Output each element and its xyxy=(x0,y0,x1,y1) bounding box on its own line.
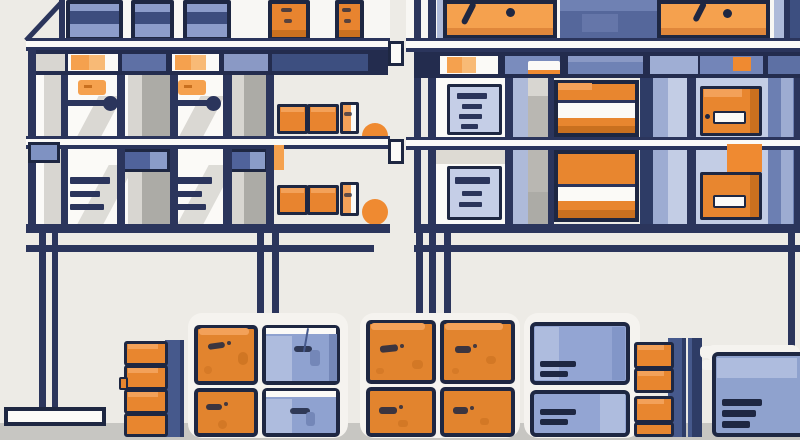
box-texture-spot xyxy=(218,420,227,429)
box-highlight xyxy=(558,83,592,90)
rack-cross-bar xyxy=(414,245,800,252)
light-column xyxy=(781,150,793,224)
band-slot-gray xyxy=(33,54,65,71)
band-orange-box-lt xyxy=(89,55,105,70)
band-orange-box-lt xyxy=(462,57,476,73)
box-smudge xyxy=(379,407,397,414)
label-dash xyxy=(184,85,192,88)
navy-sliver xyxy=(794,150,800,224)
bin-blob xyxy=(306,412,315,426)
ladder-strut-diagonal xyxy=(24,0,64,42)
list-line xyxy=(172,177,212,184)
crate-highlight xyxy=(128,392,158,397)
box-highlight xyxy=(445,323,503,330)
parcel-mark-dot xyxy=(506,8,515,17)
panel-gray-dark xyxy=(142,75,170,136)
list-line xyxy=(540,409,576,415)
bin-dark-right xyxy=(329,334,337,381)
orange-crate xyxy=(124,413,168,437)
pale-panel xyxy=(668,78,687,137)
list-line xyxy=(70,177,110,184)
box-mark xyxy=(344,19,351,23)
light-panel xyxy=(653,150,668,224)
crate-highlight xyxy=(311,107,335,112)
table-leg xyxy=(39,233,46,408)
list-line xyxy=(172,204,206,210)
rack-post xyxy=(505,78,513,137)
rack-post xyxy=(266,149,274,228)
rack-post xyxy=(117,75,125,136)
floor-box-orange xyxy=(440,387,515,437)
table-base-plate xyxy=(4,407,106,426)
list-line xyxy=(462,104,482,109)
beige-strip xyxy=(436,150,505,164)
floor-box-orange xyxy=(366,387,436,437)
box-mark xyxy=(284,19,292,23)
orange-crate-small xyxy=(340,182,359,216)
list-line xyxy=(455,177,490,184)
arrow-head xyxy=(103,96,118,111)
rack-post xyxy=(117,149,125,228)
light-panel xyxy=(653,78,668,137)
panel-gray xyxy=(232,172,244,228)
crate-highlight xyxy=(638,399,664,404)
panel-gray-dark xyxy=(142,172,170,228)
blue-panel-top-lt xyxy=(582,14,618,32)
list-line xyxy=(172,191,202,197)
band-label-orange xyxy=(528,70,560,74)
box-texture-spot xyxy=(412,360,423,369)
panel-gray-dark xyxy=(244,172,266,228)
bin-light-right xyxy=(600,394,625,433)
box-texture-spot xyxy=(204,366,212,374)
list-line xyxy=(540,419,568,425)
box-dark-edge xyxy=(750,175,759,217)
box-texture-spot xyxy=(452,368,459,374)
band-slot-blue xyxy=(122,54,166,71)
pale-sliver xyxy=(774,0,784,41)
light-column xyxy=(781,78,793,137)
navy-sliver xyxy=(794,78,800,137)
list-line xyxy=(722,399,762,406)
box-texture-spot xyxy=(398,420,408,427)
blue-bin-band xyxy=(70,11,119,24)
blue-bin-band xyxy=(135,12,170,24)
list-line xyxy=(70,204,104,210)
ladder-strut-post xyxy=(59,0,65,41)
box-smudge xyxy=(455,346,471,353)
box-highlight xyxy=(371,323,425,330)
crate-highlight xyxy=(638,345,664,350)
panel-gray xyxy=(232,75,244,136)
sub-band-blue-lt xyxy=(150,152,167,169)
bin-white-stripe xyxy=(266,328,336,334)
slot-label-orange xyxy=(178,80,206,95)
rack-post xyxy=(428,0,436,233)
band-slot-navy xyxy=(768,56,800,74)
crate-highlight xyxy=(281,188,304,193)
box-smudge xyxy=(206,404,222,410)
orange-crate xyxy=(634,422,674,437)
list-line xyxy=(722,410,756,417)
band-slot-navy xyxy=(272,54,368,71)
box-base xyxy=(558,126,635,133)
rack-post xyxy=(687,78,696,137)
arrow-line xyxy=(170,100,210,106)
table-cross-bar xyxy=(26,245,374,252)
box-mark xyxy=(344,112,352,116)
rack-bottom-bar xyxy=(414,224,800,233)
band-slot-blue-lt xyxy=(224,54,268,71)
rack-post xyxy=(266,75,274,136)
list-line xyxy=(461,124,478,129)
blue-square-left xyxy=(28,142,60,163)
band-orange-chip xyxy=(733,57,751,71)
box-texture-spot xyxy=(486,356,496,364)
box-mark xyxy=(281,8,292,12)
band-slot-blue xyxy=(700,56,763,74)
rack-post xyxy=(687,150,696,224)
box-smudge-dot xyxy=(224,402,228,406)
shelf-end-tab xyxy=(388,139,404,164)
bin-mid-right xyxy=(612,327,625,380)
orange-patch-behind xyxy=(727,144,762,172)
box-dot xyxy=(705,114,710,119)
gray-slab-dark xyxy=(528,192,548,224)
crate-highlight xyxy=(311,188,335,193)
orange-crate-small xyxy=(340,102,359,134)
box-mark xyxy=(342,8,351,12)
box-white-stripe xyxy=(558,187,635,201)
box-smudge-dot xyxy=(400,344,404,348)
crate-white-face xyxy=(351,105,356,131)
table-leg xyxy=(52,233,58,408)
crate-highlight xyxy=(281,107,304,112)
box-smudge-dot xyxy=(399,405,403,409)
rack-post xyxy=(505,150,513,224)
bin-white-stripe xyxy=(266,391,336,397)
arrow-line xyxy=(67,100,107,106)
list-line xyxy=(70,191,100,197)
blue-panel-top-lt xyxy=(560,0,657,11)
parcel-mark-dot xyxy=(723,9,732,18)
orange-box-base xyxy=(272,30,306,37)
floor-slab-edge-lt xyxy=(688,338,692,437)
box-smudge-dot xyxy=(227,341,231,345)
list-line xyxy=(722,421,750,428)
list-line xyxy=(459,202,482,207)
bin-light-top xyxy=(717,358,797,378)
crate-highlight xyxy=(128,368,158,373)
floor-slab-edge xyxy=(682,338,686,437)
orange-dot xyxy=(362,199,388,225)
sub-band-blue-lt xyxy=(250,152,265,169)
warehouse-illustration xyxy=(0,0,800,440)
slot-label-orange xyxy=(78,80,106,95)
box-smudge-dot xyxy=(470,406,474,410)
box-handle-slot xyxy=(713,195,746,208)
rack-post xyxy=(61,149,68,228)
parcel-base xyxy=(447,28,553,35)
box-highlight xyxy=(704,89,742,97)
shelf-board xyxy=(406,41,800,48)
bin-blob xyxy=(310,350,320,366)
navy-slab xyxy=(640,78,653,137)
box-texture-spot xyxy=(376,368,384,374)
rack-post xyxy=(170,149,178,228)
box-dark-edge xyxy=(750,89,759,133)
floor-box-orange xyxy=(194,388,258,437)
bin-light-left xyxy=(266,336,292,381)
panel-gray-dark xyxy=(244,75,266,136)
box-base xyxy=(558,210,635,218)
box-white-stripe xyxy=(558,103,635,118)
box-highlight xyxy=(199,328,249,335)
pale-panel xyxy=(668,150,687,224)
list-line xyxy=(540,371,568,377)
label-dash xyxy=(84,85,92,88)
panel-gray xyxy=(128,75,142,136)
table-top-bar xyxy=(26,224,390,233)
box-smudge xyxy=(453,407,468,414)
box-mark xyxy=(344,193,352,197)
arrow-head xyxy=(206,96,221,111)
box-texture-spot xyxy=(480,418,489,425)
rack-post xyxy=(414,0,421,233)
crate-highlight xyxy=(638,371,664,376)
panel-gray xyxy=(44,75,61,136)
crate-highlight xyxy=(128,344,158,349)
rack-post xyxy=(223,75,232,136)
gray-slab-top xyxy=(528,78,548,96)
pale-panel xyxy=(513,150,528,224)
blue-sliver xyxy=(790,0,800,41)
list-line xyxy=(457,93,487,99)
bin-light-left xyxy=(266,399,292,433)
orange-sliver xyxy=(274,145,284,170)
box-smudge-dot xyxy=(473,344,477,348)
list-line xyxy=(540,361,576,367)
floor-slab-edge xyxy=(180,340,184,437)
band-slot-pale xyxy=(650,56,698,74)
blue-bin-band xyxy=(187,12,227,24)
shelf-end-tab xyxy=(388,41,404,66)
box-texture-spot xyxy=(238,352,248,365)
list-line xyxy=(459,114,482,119)
crate-white-face xyxy=(351,185,356,213)
list-line xyxy=(462,191,482,196)
pale-panel xyxy=(513,78,528,137)
navy-slab xyxy=(640,150,653,224)
band-slot-blue-top xyxy=(568,56,643,62)
band-orange-box-lt xyxy=(191,55,206,70)
orange-box-base xyxy=(339,30,360,37)
parcel-base xyxy=(661,28,766,35)
rack-post xyxy=(223,149,232,228)
panel-gray xyxy=(128,172,142,228)
box-handle-slot xyxy=(713,111,746,124)
